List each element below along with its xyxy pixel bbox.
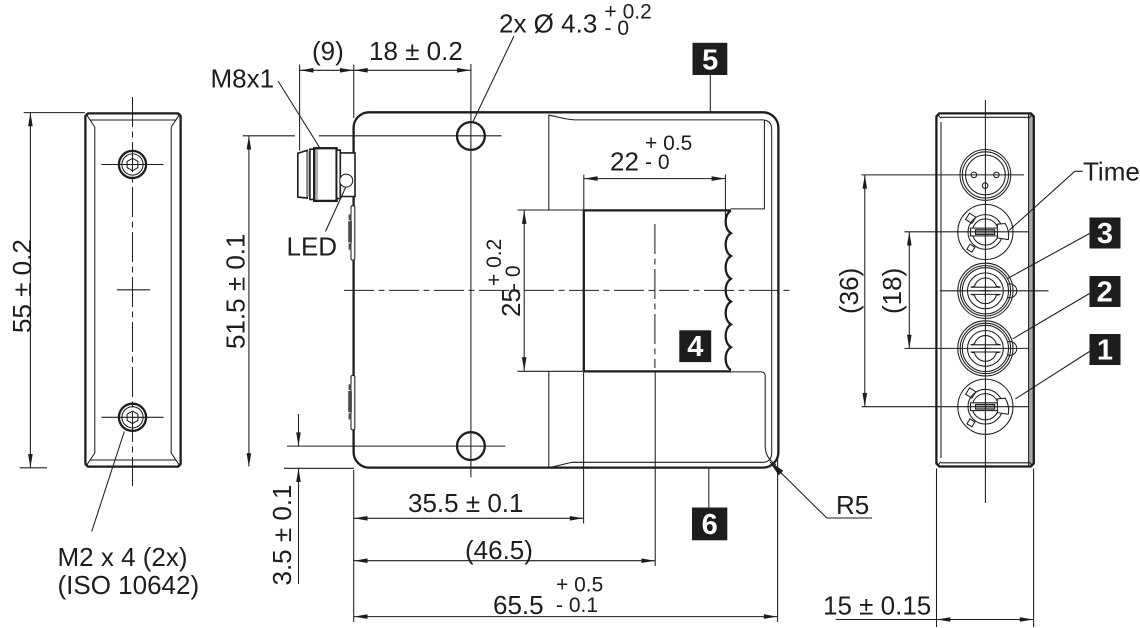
svg-text:18 ± 0.2: 18 ± 0.2 bbox=[369, 36, 463, 66]
svg-text:- 0: - 0 bbox=[645, 151, 670, 174]
svg-text:6: 6 bbox=[702, 509, 718, 541]
svg-text:(18): (18) bbox=[877, 268, 907, 314]
svg-text:51.5 ± 0.1: 51.5 ± 0.1 bbox=[221, 234, 251, 349]
svg-text:2: 2 bbox=[1097, 277, 1113, 309]
svg-text:35.5 ± 0.1: 35.5 ± 0.1 bbox=[408, 488, 523, 518]
svg-text:R5: R5 bbox=[836, 490, 869, 520]
svg-text:M2 x 4 (2x): M2 x 4 (2x) bbox=[58, 542, 188, 572]
svg-text:- 0: - 0 bbox=[605, 17, 630, 40]
svg-text:LED: LED bbox=[287, 232, 338, 262]
svg-text:(9): (9) bbox=[312, 36, 344, 66]
svg-text:4: 4 bbox=[687, 331, 703, 363]
svg-text:5: 5 bbox=[702, 44, 718, 76]
svg-text:2x Ø 4.3: 2x Ø 4.3 bbox=[499, 9, 597, 39]
svg-text:55 ± 0.2: 55 ± 0.2 bbox=[7, 239, 37, 333]
svg-text:- 0.1: - 0.1 bbox=[556, 594, 598, 617]
svg-text:M8x1: M8x1 bbox=[211, 64, 275, 94]
svg-text:(36): (36) bbox=[834, 268, 864, 314]
svg-text:25: 25 bbox=[496, 288, 526, 317]
svg-text:- 0: - 0 bbox=[502, 265, 525, 290]
svg-text:65.5: 65.5 bbox=[493, 590, 544, 620]
svg-text:15 ± 0.15: 15 ± 0.15 bbox=[823, 591, 931, 621]
svg-text:1: 1 bbox=[1097, 335, 1113, 367]
svg-text:3: 3 bbox=[1097, 218, 1113, 250]
svg-text:22: 22 bbox=[610, 147, 639, 177]
svg-text:Time: Time bbox=[1083, 157, 1140, 187]
svg-text:(ISO 10642): (ISO 10642) bbox=[58, 570, 200, 600]
svg-text:(46.5): (46.5) bbox=[465, 535, 533, 565]
svg-text:3.5 ± 0.1: 3.5 ± 0.1 bbox=[267, 484, 297, 585]
